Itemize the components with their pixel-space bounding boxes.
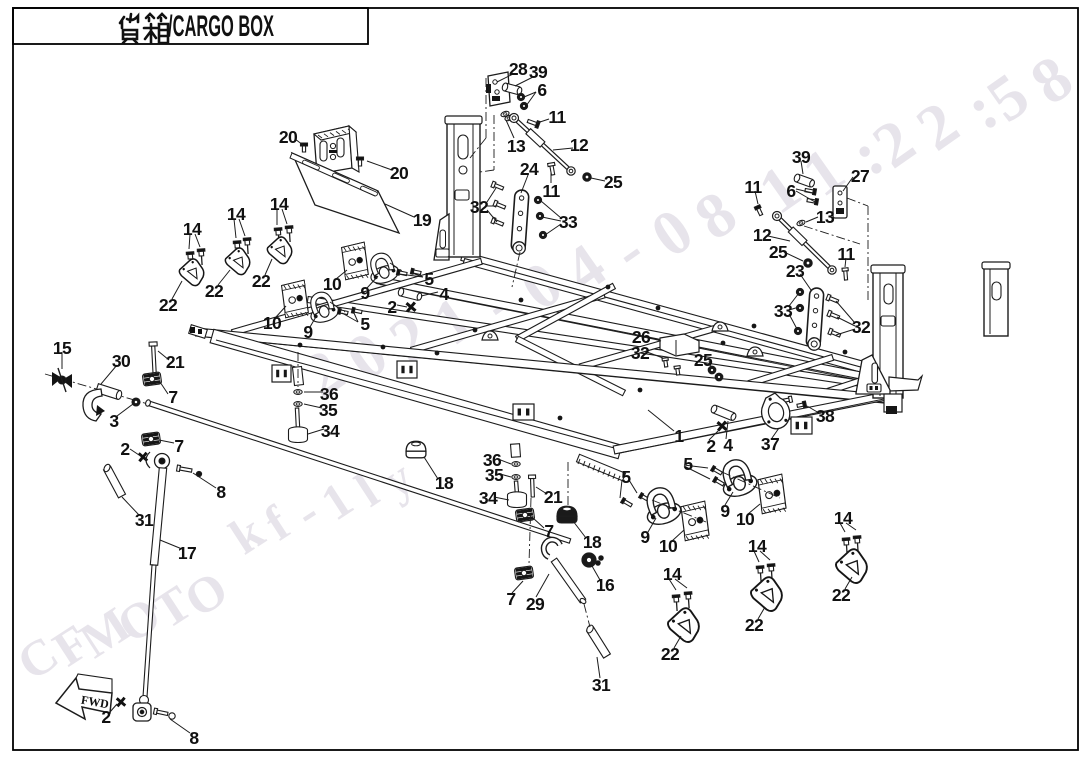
svg-text:39: 39 [529, 62, 548, 82]
svg-text:22: 22 [661, 644, 680, 664]
svg-text:14: 14 [183, 219, 202, 239]
svg-text:7: 7 [506, 589, 515, 609]
svg-text:14: 14 [227, 204, 246, 224]
svg-text:5: 5 [683, 454, 693, 474]
svg-text:21: 21 [544, 487, 563, 507]
svg-text:28: 28 [509, 59, 528, 79]
svg-text:1: 1 [674, 426, 684, 446]
svg-text:22: 22 [832, 585, 851, 605]
svg-text:39: 39 [792, 147, 811, 167]
svg-text:25: 25 [769, 242, 788, 262]
svg-text:7: 7 [174, 436, 183, 456]
svg-text:32: 32 [631, 343, 650, 363]
svg-text:38: 38 [816, 406, 835, 426]
svg-text:13: 13 [507, 136, 526, 156]
svg-text:2: 2 [101, 707, 111, 727]
svg-text:14: 14 [270, 194, 289, 214]
svg-text:15: 15 [53, 338, 72, 358]
svg-text:5: 5 [621, 467, 631, 487]
svg-text:32: 32 [852, 317, 871, 337]
svg-text:2: 2 [120, 439, 130, 459]
svg-text:23: 23 [786, 261, 805, 281]
svg-text:33: 33 [774, 301, 793, 321]
svg-text:32: 32 [470, 197, 489, 217]
svg-text:35: 35 [319, 400, 338, 420]
svg-text:/CARGO BOX: /CARGO BOX [168, 10, 274, 43]
svg-text:11: 11 [744, 177, 762, 197]
svg-text:11: 11 [542, 181, 560, 201]
svg-text:5: 5 [424, 269, 434, 289]
svg-text:13: 13 [816, 207, 835, 227]
svg-text:22: 22 [159, 295, 178, 315]
svg-text:27: 27 [851, 166, 869, 186]
svg-text:22: 22 [205, 281, 224, 301]
svg-text:8: 8 [189, 728, 199, 748]
svg-text:9: 9 [720, 501, 730, 521]
svg-text:2: 2 [387, 297, 397, 317]
svg-text:5: 5 [360, 314, 370, 334]
svg-text:37: 37 [761, 434, 779, 454]
svg-text:10: 10 [323, 274, 342, 294]
svg-text:20: 20 [279, 127, 298, 147]
svg-text:7: 7 [544, 521, 553, 541]
svg-text:16: 16 [596, 575, 615, 595]
svg-text:14: 14 [748, 536, 767, 556]
svg-text:11: 11 [548, 107, 566, 127]
svg-text:19: 19 [413, 210, 432, 230]
svg-text:35: 35 [485, 465, 504, 485]
svg-text:6: 6 [537, 80, 547, 100]
svg-text:29: 29 [526, 594, 545, 614]
svg-text:34: 34 [321, 421, 340, 441]
svg-text:12: 12 [570, 135, 589, 155]
svg-text:8: 8 [216, 482, 226, 502]
svg-text:9: 9 [640, 527, 650, 547]
svg-text:25: 25 [604, 172, 623, 192]
svg-text:18: 18 [583, 532, 602, 552]
svg-text:22: 22 [252, 271, 271, 291]
svg-text:33: 33 [559, 212, 578, 232]
svg-text:25: 25 [694, 350, 713, 370]
svg-text:4: 4 [723, 435, 733, 455]
svg-text:20: 20 [390, 163, 409, 183]
svg-text:14: 14 [834, 508, 853, 528]
svg-text:11: 11 [837, 244, 855, 264]
svg-text:10: 10 [736, 509, 755, 529]
svg-text:4: 4 [439, 284, 449, 304]
svg-text:22: 22 [745, 615, 764, 635]
svg-text:34: 34 [479, 488, 498, 508]
svg-text:30: 30 [112, 351, 131, 371]
svg-text:14: 14 [663, 564, 682, 584]
svg-text:2: 2 [706, 436, 716, 456]
svg-text:17: 17 [178, 543, 196, 563]
svg-text:18: 18 [435, 473, 454, 493]
svg-text:24: 24 [520, 159, 539, 179]
svg-text:3: 3 [109, 411, 119, 431]
svg-text:21: 21 [166, 352, 185, 372]
svg-text:9: 9 [303, 322, 313, 342]
svg-text:7: 7 [168, 387, 177, 407]
svg-text:9: 9 [360, 283, 370, 303]
svg-text:10: 10 [659, 536, 678, 556]
svg-text:31: 31 [135, 510, 154, 530]
svg-text:31: 31 [592, 675, 611, 695]
svg-text:6: 6 [786, 181, 796, 201]
svg-text:10: 10 [263, 313, 282, 333]
